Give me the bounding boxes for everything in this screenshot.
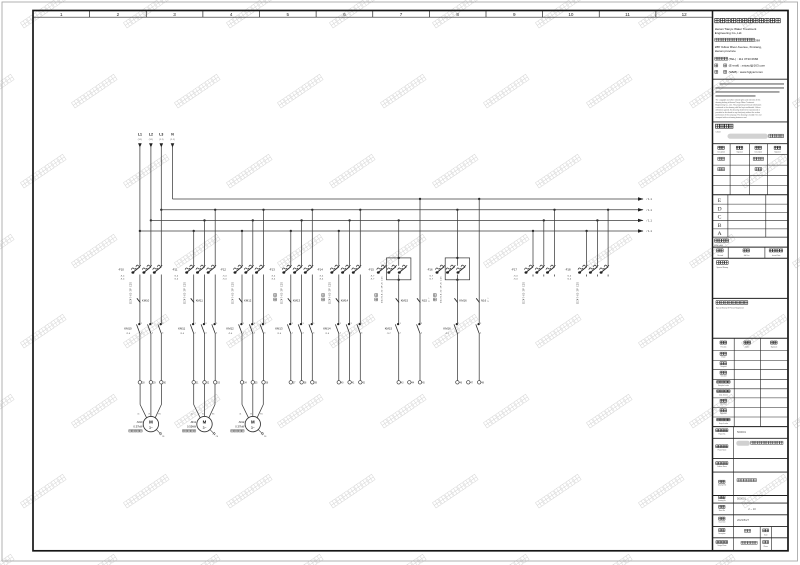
svg-text:4: 4 [351,333,352,335]
svg-text:1: 1 [141,323,142,325]
svg-text:KM12: KM12 [226,326,234,330]
svg-text:DZ47-60 3P C25: DZ47-60 3P C25 [282,281,284,303]
svg-text:provided or disclosed to any t: provided or disclosed to any third party… [716,111,761,114]
svg-text:4: 4 [303,333,304,335]
svg-text:U1: U1 [239,413,241,415]
svg-text:(1.1): (1.1) [138,139,143,141]
svg-text:3: 3 [205,323,206,325]
svg-text:First Issue: First Issue [715,244,723,247]
svg-text:The copyright and other relate: The copyright and other related rights a… [716,98,761,101]
svg-text:5: 5 [287,12,290,17]
svg-text:2: 2 [458,333,459,335]
svg-text:288: 288 [755,38,760,42]
svg-text:L3: L3 [159,132,163,136]
svg-text:9: 9 [513,12,516,17]
svg-text:7: 7 [400,12,403,17]
svg-text:KM10: KM10 [124,326,132,330]
svg-text:DZ47-60 3P C25: DZ47-60 3P C25 [184,281,186,303]
svg-text:DZ47-60 3P C25: DZ47-60 3P C25 [524,281,526,303]
svg-text:(E-mail) : xxtyscl@163.com: (E-mail) : xxtyscl@163.com [729,64,766,68]
svg-text:DZ47LE-32 1P+N C16: DZ47LE-32 1P+N C16 [440,276,442,303]
svg-text:DZ47-60 3P C25: DZ47-60 3P C25 [330,281,332,303]
svg-text:3: 3 [254,323,255,325]
svg-text:Scale: Scale [764,534,768,536]
svg-text:D: D [717,207,721,213]
svg-text:4: 4 [421,333,422,335]
svg-text:B: B [718,223,722,229]
svg-text:1: 1 [458,323,459,325]
svg-text:Designed: Designed [720,366,726,368]
svg-text:Drawing No.: Drawing No. [718,500,727,502]
svg-text:M: M [149,420,153,425]
svg-text:otherwise agreed, this drawing: otherwise agreed, this drawing shall not… [716,109,761,112]
svg-text:(WEB) : www.hgtyscl.com: (WEB) : www.hgtyscl.com [729,70,764,74]
svg-text:V1: V1 [148,413,150,415]
svg-text:KM15: KM15 [385,326,393,330]
svg-text:(1.1): (1.1) [149,139,154,141]
svg-text:DZ47-60 3P C25: DZ47-60 3P C25 [131,281,133,303]
svg-text:N16: N16 [481,298,487,302]
svg-text:5: 5 [216,323,217,325]
svg-text:3~: 3~ [149,426,153,430]
svg-text:N15: N15 [422,298,428,302]
svg-text:4: 4 [230,12,233,17]
svg-text:KM12: KM12 [244,298,252,302]
svg-text:-M11: -M11 [190,420,196,424]
svg-text:E: E [718,198,722,204]
svg-text:Engineering Co.,Ltd.: Engineering Co.,Ltd. [715,31,743,35]
svg-text:3: 3 [480,323,481,325]
svg-text:KM11: KM11 [178,326,186,330]
svg-text:5: 5 [162,323,163,325]
svg-text:-F17: -F17 [511,268,517,272]
svg-text:5: 5 [361,323,362,325]
svg-text:/ 1.1: / 1.1 [647,208,653,212]
svg-text:6: 6 [361,333,362,335]
svg-text:drawing belong to Henan Tianyu: drawing belong to Henan Tianyu Water Tre… [716,101,755,104]
svg-text:-F14: -F14 [317,268,323,272]
svg-text:KM14: KM14 [341,298,349,302]
svg-text:DZ47-60 3P C25: DZ47-60 3P C25 [233,281,235,303]
svg-text:contained in the drawing shall: contained in the drawing shall be kept c… [716,106,761,109]
svg-text:C: C [718,215,722,221]
svg-text:6: 6 [343,12,346,17]
svg-text:3: 3 [421,323,422,325]
svg-text:/ 1.1: / 1.1 [647,197,653,201]
svg-text:/ 1.1: / 1.1 [647,219,653,223]
svg-text:KM16: KM16 [459,298,467,302]
svg-text:KM10: KM10 [142,298,150,302]
svg-text:6: 6 [313,333,314,335]
svg-text:-M10: -M10 [136,420,143,424]
svg-text:2: 2 [195,333,196,335]
svg-text:1: 1 [340,323,341,325]
svg-text:Job Des: Job Des [744,255,750,257]
svg-text:2 ~ 10: 2 ~ 10 [748,507,756,511]
svg-text:DZ47-60 3P C25: DZ47-60 3P C25 [577,281,579,303]
svg-text:Name: Name [745,347,749,349]
svg-text:KM15: KM15 [401,298,409,302]
svg-text:KM14: KM14 [323,326,331,330]
svg-text:6: 6 [162,333,163,335]
svg-text:(TEL) : 111 3733 0666: (TEL) : 111 3733 0666 [729,57,759,61]
svg-text:Special Stamp Of Person Regist: Special Stamp Of Person Registered [716,307,744,310]
svg-text:3: 3 [152,323,153,325]
svg-text:1: 1 [195,323,196,325]
svg-text:10: 10 [568,12,574,17]
svg-text:-F10: -F10 [118,268,124,272]
svg-text:KM11: KM11 [196,298,204,302]
svg-text:KM13: KM13 [275,326,283,330]
svg-text:2: 2 [340,333,341,335]
svg-text:stamped with our drawing busin: stamped with our drawing business seal. [716,116,748,119]
svg-text:4: 4 [480,333,481,335]
svg-text:Drawn: Drawn [721,357,725,359]
svg-text:permission of the company. The: permission of the company. The drawing i… [716,114,762,117]
svg-text:(1.1): (1.1) [159,139,164,141]
svg-text:-F12: -F12 [220,268,226,272]
svg-text:Revised: Revised [717,255,723,257]
svg-text:500001: 500001 [737,497,746,501]
svg-text:2: 2 [292,333,293,335]
svg-text:Reviewed: Reviewed [720,404,727,406]
svg-text:Engineering Co., Ltd.. The pro: Engineering Co., Ltd.. The proprietary t… [716,103,762,106]
svg-text:KM16: KM16 [443,326,451,330]
svg-text:2023/5/27: 2023/5/27 [737,518,749,522]
svg-text:/ 1.1: / 1.1 [647,229,653,233]
svg-text:Design Phase: Design Phase [718,545,727,547]
svg-text:L: L [429,298,430,300]
svg-text:L: L [488,298,489,300]
svg-text:DZ47LE-32 1P+N C16: DZ47LE-32 1P+N C16 [382,276,384,303]
svg-text:500001: 500001 [737,430,746,434]
svg-text:0.37kW: 0.37kW [235,425,245,429]
svg-text:(1.1): (1.1) [170,139,175,141]
svg-text:2: 2 [141,333,142,335]
svg-text:0.55kW: 0.55kW [187,425,197,429]
svg-text:1: 1 [60,12,63,17]
svg-text:1: 1 [400,323,401,325]
svg-text:Client: Client [716,131,722,134]
svg-text:6: 6 [264,333,265,335]
svg-text:Discipline Leader: Discipline Leader [718,385,730,387]
svg-text:3: 3 [173,12,176,17]
svg-text:L2: L2 [149,132,153,136]
svg-text:U1: U1 [137,413,139,415]
svg-text:-F16: -F16 [427,268,433,272]
svg-text:2: 2 [400,333,401,335]
svg-text:W1: W1 [260,413,263,415]
svg-text:3: 3 [351,323,352,325]
svg-text:-F18: -F18 [565,268,571,272]
svg-text:V1: V1 [202,413,204,415]
svg-text:U1: U1 [191,413,193,415]
svg-text:4: 4 [205,333,206,335]
svg-text:6: 6 [216,333,217,335]
svg-text:5: 5 [313,323,314,325]
svg-text:-F11: -F11 [172,268,178,272]
svg-text:M: M [251,420,255,425]
svg-text:1: 1 [243,323,244,325]
svg-text:Phase: Phase [764,546,768,548]
svg-text:Special Stamp: Special Stamp [717,266,729,269]
svg-text:-F15: -F15 [368,268,374,272]
svg-text:-M12: -M12 [238,420,245,424]
svg-text:12: 12 [682,12,688,17]
svg-text:3~: 3~ [251,426,255,430]
svg-text:11: 11 [625,12,630,17]
svg-text:4: 4 [254,333,255,335]
svg-text:V1: V1 [250,413,252,415]
svg-text:5: 5 [264,323,265,325]
svg-text:Checked: Checked [721,376,727,378]
svg-text:Henan province: Henan province [715,49,736,53]
svg-text:W1: W1 [158,413,161,415]
svg-text:2: 2 [243,333,244,335]
svg-text:4: 4 [152,333,153,335]
svg-text:0.37kW: 0.37kW [133,425,143,429]
svg-text:L1: L1 [138,132,142,136]
svg-text:3~: 3~ [203,426,207,430]
svg-text:1: 1 [292,323,293,325]
svg-text:8: 8 [456,12,459,17]
svg-text:3: 3 [303,323,304,325]
svg-text:W1: W1 [212,413,215,415]
svg-text:M: M [203,420,207,425]
svg-text:KM13: KM13 [293,298,301,302]
svg-text:-F13: -F13 [269,268,275,272]
svg-text:2: 2 [117,12,120,17]
